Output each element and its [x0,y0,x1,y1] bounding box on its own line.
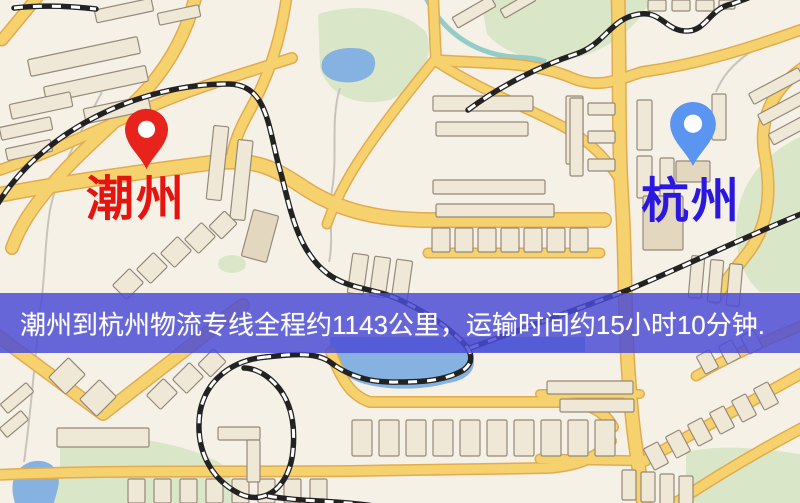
origin-pin-shape [125,109,168,169]
origin-city-label: 潮州 [86,176,186,224]
route-info-text: 潮州到杭州物流专线全程约1143公里，运输时间约15小时10分钟. [0,305,765,342]
origin-pin-icon[interactable] [125,108,168,170]
origin-pin-hole [138,121,155,138]
map-canvas[interactable] [0,0,800,503]
destination-pin-hole [684,115,702,133]
destination-city-label: 杭州 [641,178,741,226]
destination-pin-shape [670,102,716,166]
destination-pin-icon[interactable] [670,102,716,166]
route-info-banner: 潮州到杭州物流专线全程约1143公里，运输时间约15小时10分钟. [0,293,800,353]
map-screenshot: 潮州 杭州 潮州到杭州物流专线全程约1143公里，运输时间约15小时10分钟. [0,0,800,503]
